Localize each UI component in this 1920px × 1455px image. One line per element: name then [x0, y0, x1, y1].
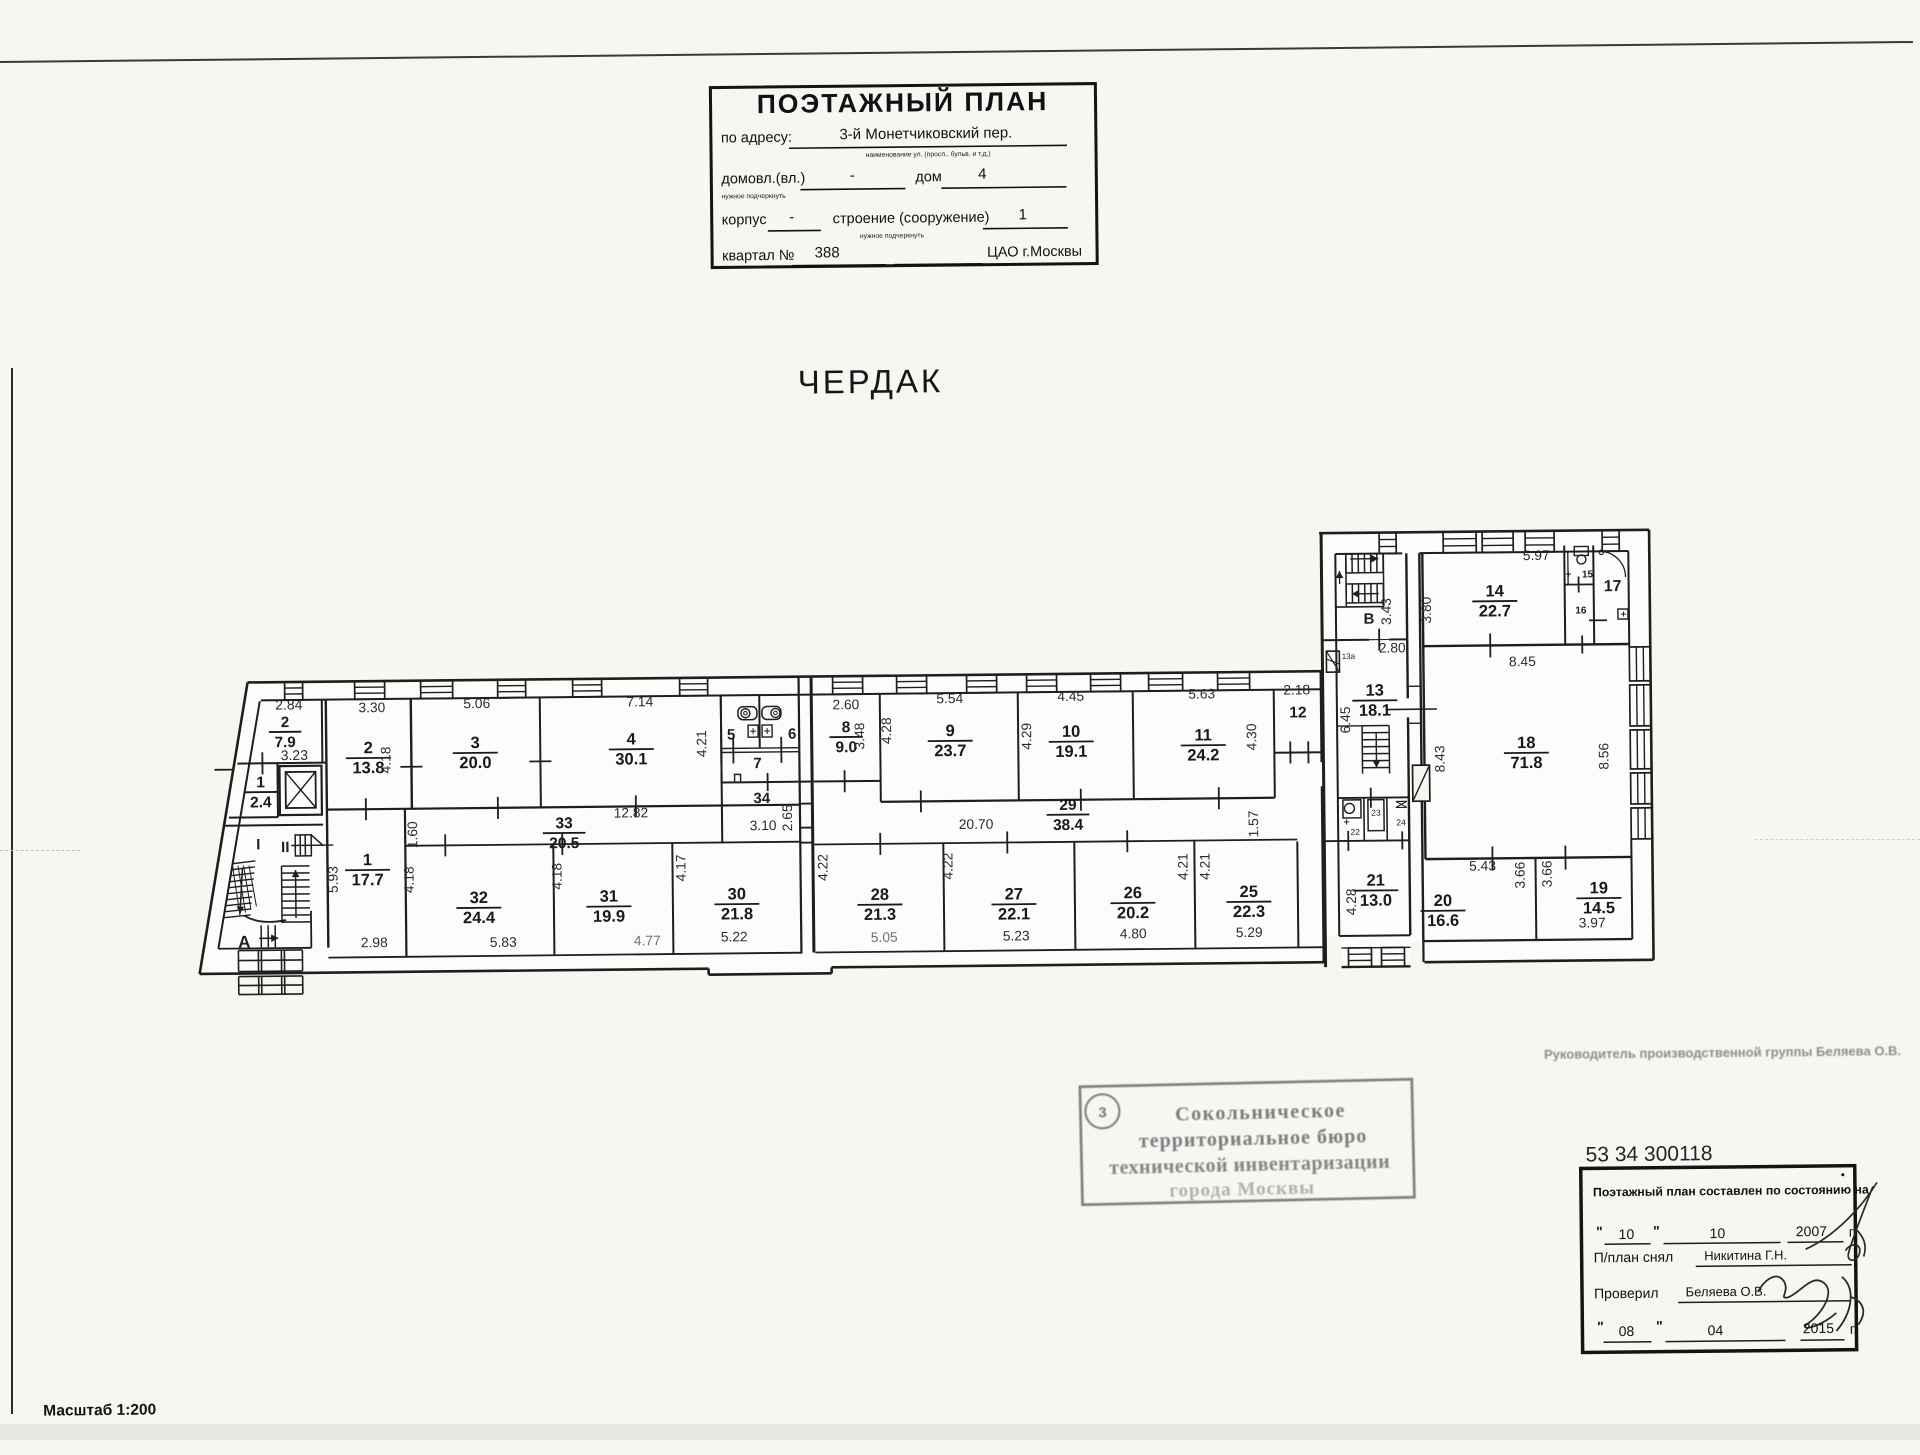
svg-text:30: 30 [728, 885, 747, 903]
svg-text:2: 2 [281, 714, 290, 731]
svg-text:Поэтажный план составлен по со: Поэтажный план составлен по состоянию на [1593, 1183, 1869, 1200]
svg-text:ЧЕРДАК: ЧЕРДАК [798, 362, 944, 401]
svg-text:388: 388 [814, 244, 839, 261]
svg-text:1.60: 1.60 [405, 821, 420, 848]
svg-text:5.63: 5.63 [1188, 686, 1215, 701]
svg-text:-: - [850, 167, 855, 184]
svg-text:4.28: 4.28 [879, 717, 894, 744]
svg-text:строение (сооружение): строение (сооружение) [833, 210, 990, 228]
svg-text:8.45: 8.45 [1509, 654, 1536, 669]
svg-text:5.93: 5.93 [325, 866, 340, 893]
svg-text:1: 1 [1018, 206, 1027, 223]
svg-text:5.06: 5.06 [463, 696, 490, 711]
svg-text:19.9: 19.9 [593, 908, 625, 926]
svg-text:16.6: 16.6 [1427, 912, 1459, 930]
svg-text:4.28: 4.28 [1344, 888, 1359, 915]
svg-text:32: 32 [470, 889, 489, 907]
svg-text:5.05: 5.05 [871, 930, 898, 945]
svg-text:5: 5 [727, 726, 736, 743]
svg-text:20: 20 [1434, 892, 1453, 910]
svg-text:Никитина Г.Н.: Никитина Г.Н. [1704, 1247, 1787, 1263]
svg-text:20.70: 20.70 [959, 817, 994, 832]
svg-text:5.22: 5.22 [721, 929, 748, 944]
svg-text:квартал №: квартал № [722, 248, 794, 265]
svg-text:4.80: 4.80 [1120, 926, 1147, 941]
svg-text:2.98: 2.98 [361, 935, 388, 950]
svg-text:11: 11 [1194, 726, 1212, 744]
svg-text:-: - [789, 209, 794, 226]
svg-text:4.22: 4.22 [815, 854, 830, 881]
svg-text:домовл.(вл.): домовл.(вл.) [721, 171, 805, 188]
svg-text:12: 12 [1289, 704, 1306, 721]
svg-text:5.54: 5.54 [936, 691, 963, 706]
svg-text:3.66: 3.66 [1539, 860, 1554, 887]
svg-text:1.57: 1.57 [1246, 810, 1261, 837]
svg-text:34: 34 [753, 790, 771, 807]
svg-text:24.2: 24.2 [1187, 746, 1219, 764]
svg-text:4.21: 4.21 [694, 730, 709, 757]
svg-text:6.45: 6.45 [1338, 706, 1353, 733]
svg-text:08: 08 [1619, 1323, 1635, 1339]
svg-text:нужное подчеркнуть: нужное подчеркнуть [860, 232, 925, 240]
svg-text:2.4: 2.4 [250, 794, 272, 811]
svg-text:22.3: 22.3 [1233, 903, 1265, 921]
svg-text:27: 27 [1005, 885, 1024, 903]
svg-text:дом: дом [915, 169, 942, 185]
svg-text:3.48: 3.48 [852, 722, 867, 749]
svg-text:19: 19 [1590, 879, 1609, 897]
svg-text:3: 3 [1098, 1104, 1107, 1121]
svg-text:31: 31 [600, 888, 619, 906]
svg-text:": " [1596, 1223, 1603, 1239]
svg-text:10: 10 [1062, 723, 1081, 741]
svg-text:6: 6 [788, 726, 797, 743]
svg-text:В: В [1363, 611, 1374, 628]
svg-text:8.56: 8.56 [1596, 742, 1611, 769]
svg-text:города Москвы: города Москвы [1169, 1177, 1315, 1201]
svg-text:4.18: 4.18 [549, 862, 564, 889]
svg-text:38.4: 38.4 [1053, 817, 1084, 834]
svg-text:4.30: 4.30 [1244, 723, 1259, 750]
svg-text:4.17: 4.17 [673, 854, 688, 881]
svg-text:16: 16 [1575, 605, 1587, 616]
svg-text:19.1: 19.1 [1055, 743, 1087, 761]
svg-text:28: 28 [871, 886, 890, 904]
svg-text:5.43: 5.43 [1469, 858, 1496, 873]
svg-text:4: 4 [626, 730, 636, 748]
svg-text:3.97: 3.97 [1579, 915, 1606, 930]
svg-text:7: 7 [753, 755, 762, 772]
svg-text:13.0: 13.0 [1360, 891, 1392, 909]
svg-text:А: А [238, 932, 250, 951]
svg-text:4.21: 4.21 [1197, 853, 1212, 880]
svg-text:4.18: 4.18 [401, 866, 416, 893]
svg-text:2: 2 [364, 739, 373, 757]
svg-text:3.23: 3.23 [281, 747, 309, 763]
svg-text:Проверил: Проверил [1594, 1285, 1659, 1302]
svg-text:15: 15 [1582, 569, 1594, 580]
svg-text:П/план снял: П/план снял [1594, 1249, 1674, 1266]
svg-text:24: 24 [1396, 817, 1406, 827]
svg-text:технической инвентаризации: технической инвентаризации [1109, 1151, 1390, 1179]
svg-text:2.65: 2.65 [780, 804, 795, 831]
svg-text:4.22: 4.22 [940, 853, 955, 880]
svg-text:нужное подчеркнуть: нужное подчеркнуть [721, 193, 786, 201]
svg-text:24.4: 24.4 [463, 909, 496, 927]
svg-text:Руководитель производственной: Руководитель производственной группы Бел… [1544, 1043, 1901, 1062]
svg-text:7.14: 7.14 [626, 694, 653, 709]
svg-text:3: 3 [471, 734, 480, 752]
svg-text:4.77: 4.77 [634, 933, 661, 948]
svg-text:53 34 300118: 53 34 300118 [1585, 1142, 1712, 1166]
svg-text:": " [1597, 1318, 1604, 1334]
svg-text:4.45: 4.45 [1057, 689, 1084, 704]
svg-text:12.82: 12.82 [614, 805, 649, 820]
svg-text:2.60: 2.60 [832, 697, 859, 712]
svg-text:22.7: 22.7 [1479, 602, 1511, 620]
svg-text:Сокольническое: Сокольническое [1175, 1100, 1346, 1126]
svg-text:22.1: 22.1 [998, 905, 1030, 923]
svg-text:2.80: 2.80 [1379, 640, 1406, 655]
svg-text:3.80: 3.80 [1419, 596, 1434, 623]
svg-text:4.29: 4.29 [1019, 722, 1034, 749]
svg-text:17: 17 [1604, 578, 1622, 595]
svg-text:2.84: 2.84 [275, 696, 303, 712]
svg-text:13а: 13а [1342, 652, 1356, 661]
svg-text:II: II [281, 839, 290, 856]
svg-text:33: 33 [555, 815, 573, 832]
svg-text:4.21: 4.21 [1175, 853, 1190, 880]
svg-text:3-й Монетчиковский пер.: 3-й Монетчиковский пер. [839, 124, 1012, 143]
svg-text:13: 13 [1365, 682, 1384, 700]
svg-text:23.7: 23.7 [934, 742, 966, 760]
svg-text:1: 1 [363, 851, 372, 869]
svg-text:территориальное бюро: территориальное бюро [1139, 1125, 1368, 1152]
svg-text:г.: г. [1850, 1321, 1857, 1337]
svg-text:26: 26 [1124, 884, 1143, 902]
svg-text:4.18: 4.18 [378, 746, 393, 773]
svg-text:4: 4 [978, 166, 987, 183]
svg-text:по адресу:: по адресу: [721, 130, 792, 147]
svg-text:": " [1653, 1223, 1660, 1239]
svg-text:23: 23 [1371, 808, 1381, 818]
svg-text:2.18: 2.18 [1283, 682, 1310, 697]
svg-text:Беляева О.В.: Беляева О.В. [1686, 1284, 1767, 1300]
svg-text:5.29: 5.29 [1236, 925, 1263, 940]
svg-text:22: 22 [1350, 827, 1360, 837]
svg-text:20.2: 20.2 [1117, 904, 1149, 922]
svg-text:10: 10 [1710, 1225, 1726, 1241]
svg-text:": " [1656, 1318, 1663, 1334]
svg-text:25: 25 [1240, 883, 1259, 901]
svg-text:I: I [256, 836, 260, 853]
svg-text:21: 21 [1366, 872, 1385, 890]
svg-text:3.43: 3.43 [1379, 598, 1394, 625]
svg-text:3.10: 3.10 [750, 818, 777, 833]
svg-text:21.8: 21.8 [721, 905, 753, 923]
svg-text:3.66: 3.66 [1513, 861, 1528, 888]
svg-text:корпус: корпус [722, 212, 767, 228]
svg-text:10: 10 [1619, 1226, 1635, 1242]
svg-text:04: 04 [1708, 1322, 1724, 1338]
svg-text:1: 1 [256, 774, 265, 791]
svg-text:30.1: 30.1 [615, 750, 647, 768]
svg-text:2015: 2015 [1803, 1320, 1835, 1336]
svg-text:9: 9 [945, 722, 954, 740]
svg-text:3.30: 3.30 [358, 700, 385, 715]
svg-text:2007: 2007 [1796, 1223, 1828, 1239]
svg-text:20.0: 20.0 [459, 754, 491, 772]
svg-text:Масштаб 1:200: Масштаб 1:200 [43, 1401, 156, 1419]
svg-text:5.97: 5.97 [1523, 548, 1550, 563]
svg-text:18: 18 [1517, 734, 1536, 752]
svg-text:18.1: 18.1 [1359, 701, 1391, 719]
svg-text:5.83: 5.83 [490, 935, 517, 950]
svg-text:наименование ул. (просп., буль: наименование ул. (просп., бульв. и т.д.) [866, 150, 991, 159]
svg-text:21.3: 21.3 [864, 906, 896, 924]
svg-text:8: 8 [842, 719, 851, 736]
svg-text:ЦАО г.Москвы: ЦАО г.Москвы [987, 244, 1082, 261]
svg-text:29: 29 [1059, 797, 1077, 814]
svg-text:71.8: 71.8 [1510, 754, 1542, 772]
svg-text:8.43: 8.43 [1432, 745, 1447, 772]
svg-text:17.7: 17.7 [351, 871, 383, 889]
svg-text:5.23: 5.23 [1003, 928, 1030, 943]
svg-text:ПОЭТАЖНЫЙ ПЛАН: ПОЭТАЖНЫЙ ПЛАН [757, 86, 1049, 119]
svg-text:14: 14 [1485, 582, 1504, 600]
